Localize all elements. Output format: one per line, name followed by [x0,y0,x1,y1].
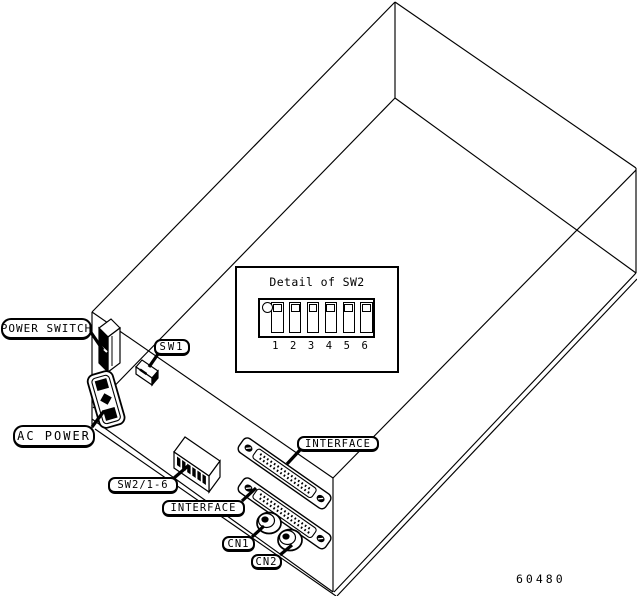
dip-switch-5 [343,302,356,333]
callout-power-switch: POWER SWITCH [1,318,92,340]
dip-knob-3 [309,304,318,312]
callout-cn1: CN1 [222,536,255,552]
dip-slot-row [271,302,373,335]
dip-switch-3 [307,302,320,333]
dip-knob-2 [291,304,300,312]
power-switch-3d [99,319,120,372]
callout-interface-lower: INTERFACE [162,500,245,517]
dip-switch-number-2: 2 [287,340,300,352]
dip-switch-graphic [258,298,375,338]
detail-inset-box: Detail of SW2 123456 [235,266,399,373]
interface-upper-leader [287,450,300,464]
detail-title: Detail of SW2 [237,275,397,289]
dip-knob-5 [344,304,353,312]
callout-sw1: SW1 [154,339,190,356]
callout-interface-upper: INTERFACE [297,436,379,452]
dip-switch-2 [289,302,302,333]
dip-index-circle [262,302,273,313]
dip-switch-number-4: 4 [323,340,336,352]
dip-switch-number-3: 3 [305,340,318,352]
sw1-leader [149,354,158,367]
dip-number-row: 123456 [269,340,371,352]
callout-cn2: CN2 [251,554,282,570]
dip-switch-number-5: 5 [341,340,354,352]
dip-knob-4 [326,304,335,312]
callout-ac-power: AC POWER [13,425,95,448]
sw2-dip-3d [174,437,220,492]
dip-switch-number-1: 1 [269,340,282,352]
callout-sw2: SW2/1-6 [108,477,178,494]
dip-knob-1 [273,304,282,312]
dip-switch-6 [360,302,373,333]
sw1-switch-3d [136,360,158,385]
figure-number: 60480 [516,572,566,586]
dip-knob-6 [362,304,371,312]
dip-switch-number-6: 6 [358,340,371,352]
dip-switch-4 [325,302,338,333]
figure: POWER SWITCH AC POWER SW1 SW2/1-6 INTERF… [0,0,637,596]
